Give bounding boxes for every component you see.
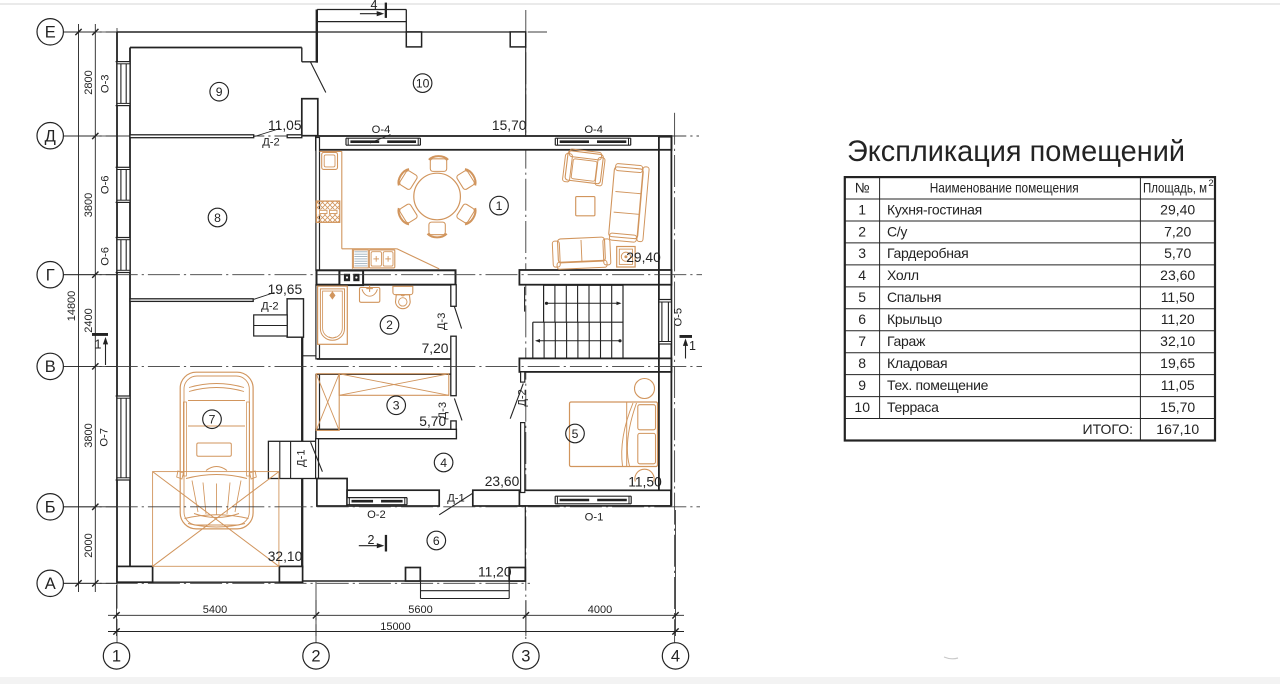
svg-text:3: 3 (521, 648, 530, 666)
svg-text:14800: 14800 (66, 291, 78, 322)
svg-text:Тех. помещение: Тех. помещение (887, 377, 989, 393)
svg-text:7: 7 (209, 413, 216, 427)
svg-text:23,60: 23,60 (485, 474, 520, 489)
svg-text:6: 6 (858, 311, 866, 327)
svg-text:Д-2: Д-2 (262, 136, 280, 148)
svg-text:Гараж: Гараж (887, 333, 926, 349)
svg-text:О-1: О-1 (585, 511, 604, 523)
svg-text:6: 6 (433, 534, 440, 548)
svg-text:3: 3 (858, 245, 866, 261)
svg-text:В: В (45, 358, 56, 376)
svg-text:11,50: 11,50 (1161, 289, 1195, 305)
svg-text:О-6: О-6 (99, 175, 111, 194)
svg-text:3800: 3800 (83, 423, 95, 447)
svg-text:О-2: О-2 (367, 509, 386, 521)
svg-text:Д-3: Д-3 (437, 402, 449, 420)
svg-text:2: 2 (311, 648, 320, 666)
svg-text:О-4: О-4 (584, 124, 603, 136)
svg-text:Г: Г (46, 267, 55, 285)
svg-text:4: 4 (671, 648, 680, 666)
svg-text:Д-2: Д-2 (261, 300, 279, 312)
svg-text:Д-1: Д-1 (296, 449, 308, 467)
svg-text:О-3: О-3 (99, 74, 111, 93)
svg-text:Кухня-гостиная: Кухня-гостиная (887, 201, 982, 217)
svg-text:7: 7 (858, 333, 866, 349)
svg-text:15,70: 15,70 (492, 118, 527, 133)
svg-text:2: 2 (368, 533, 375, 547)
svg-text:4: 4 (371, 0, 378, 12)
svg-text:Д-3: Д-3 (436, 313, 448, 331)
svg-text:Гардеробная: Гардеробная (887, 245, 968, 261)
svg-text:Д-2: Д-2 (517, 389, 529, 407)
svg-text:32,10: 32,10 (268, 549, 303, 564)
svg-text:ИТОГО:: ИТОГО: (1083, 421, 1133, 437)
svg-text:1: 1 (112, 648, 121, 666)
svg-text:4: 4 (858, 267, 866, 283)
svg-text:9: 9 (216, 85, 223, 99)
svg-text:Д-1: Д-1 (447, 492, 465, 504)
svg-text:5400: 5400 (203, 604, 227, 616)
svg-text:№: № (855, 179, 870, 195)
svg-text:9: 9 (858, 377, 866, 393)
svg-text:8: 8 (214, 211, 221, 225)
svg-text:7,20: 7,20 (422, 341, 449, 356)
svg-text:1: 1 (689, 339, 696, 353)
svg-text:23,60: 23,60 (1160, 267, 1195, 283)
svg-text:Е: Е (45, 24, 56, 42)
svg-text:5600: 5600 (408, 604, 432, 616)
svg-text:Б: Б (45, 499, 56, 517)
svg-text:8: 8 (858, 355, 866, 371)
svg-text:Площадь, м: Площадь, м (1143, 179, 1207, 195)
svg-text:1: 1 (496, 199, 503, 213)
svg-text:19,65: 19,65 (1160, 355, 1195, 371)
svg-text:11,20: 11,20 (478, 565, 512, 580)
svg-text:2: 2 (858, 223, 866, 239)
svg-text:Холл: Холл (887, 267, 919, 283)
svg-text:3800: 3800 (83, 193, 95, 217)
svg-text:5: 5 (572, 427, 579, 441)
svg-text:О-4: О-4 (372, 124, 391, 136)
svg-text:Экспликация помещений: Экспликация помещений (847, 135, 1185, 168)
svg-text:Кладовая: Кладовая (887, 355, 947, 371)
svg-text:4: 4 (440, 456, 447, 470)
svg-text:2800: 2800 (83, 70, 95, 94)
svg-text:2: 2 (1208, 178, 1213, 189)
svg-text:11,05: 11,05 (268, 118, 302, 133)
svg-text:29,40: 29,40 (1160, 201, 1195, 217)
svg-text:32,10: 32,10 (1160, 333, 1195, 349)
svg-text:Крыльцо: Крыльцо (887, 311, 943, 327)
svg-text:О-5: О-5 (673, 308, 685, 327)
svg-text:11,05: 11,05 (1161, 377, 1195, 393)
svg-text:3: 3 (393, 399, 400, 413)
svg-text:15000: 15000 (380, 621, 411, 633)
svg-text:1: 1 (858, 201, 866, 217)
svg-text:10: 10 (854, 399, 870, 415)
svg-text:Наименование помещения: Наименование помещения (930, 179, 1079, 195)
svg-text:2400: 2400 (83, 308, 95, 332)
svg-text:29,40: 29,40 (626, 250, 661, 265)
svg-text:5,70: 5,70 (1164, 245, 1191, 261)
svg-text:4000: 4000 (588, 604, 612, 616)
svg-text:15,70: 15,70 (1160, 399, 1195, 415)
svg-text:2000: 2000 (83, 533, 95, 557)
svg-text:5: 5 (858, 289, 866, 305)
svg-text:Спальня: Спальня (887, 289, 941, 305)
svg-text:11,50: 11,50 (628, 474, 662, 489)
svg-text:2: 2 (386, 318, 393, 332)
svg-text:О-6: О-6 (99, 247, 111, 266)
svg-text:19,65: 19,65 (268, 282, 303, 297)
svg-text:11,20: 11,20 (1161, 311, 1195, 327)
svg-text:Д: Д (45, 128, 56, 146)
svg-text:10: 10 (416, 76, 430, 90)
svg-text:Терраса: Терраса (887, 399, 939, 415)
svg-text:А: А (45, 575, 56, 593)
svg-text:7,20: 7,20 (1164, 223, 1191, 239)
svg-text:О-7: О-7 (99, 428, 111, 447)
svg-text:С/у: С/у (887, 223, 907, 239)
svg-text:167,10: 167,10 (1156, 421, 1199, 437)
